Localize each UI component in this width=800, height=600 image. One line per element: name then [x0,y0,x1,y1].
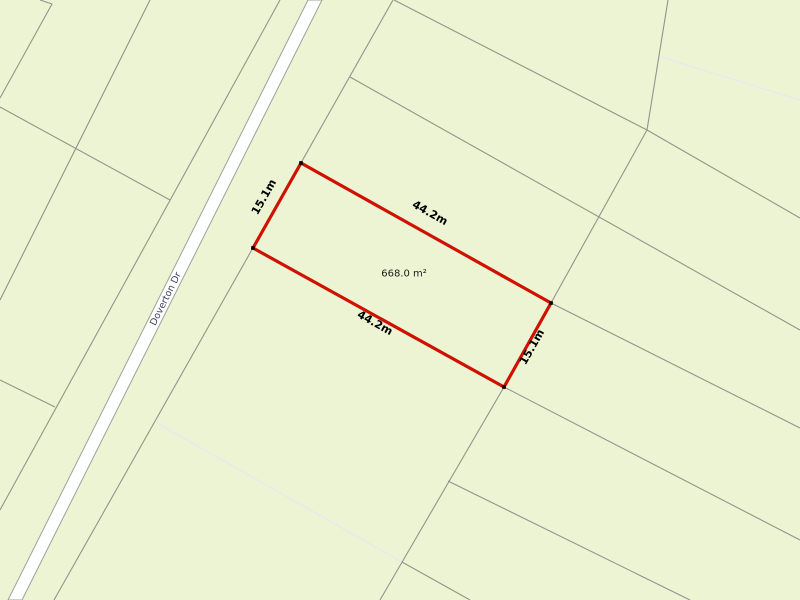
map-viewport: Doverton Dr15.1m44.2m44.2m15.1m668.0 m² [0,0,800,600]
parcel-corner-marker-0 [299,161,303,165]
parcel-area-label: 668.0 m² [381,269,427,280]
map-background [0,0,800,600]
parcel-corner-marker-3 [251,246,255,250]
parcel-corner-marker-1 [549,301,553,305]
parcel-corner-marker-2 [502,385,506,389]
cadastral-map-svg[interactable]: Doverton Dr15.1m44.2m44.2m15.1m668.0 m² [0,0,800,600]
